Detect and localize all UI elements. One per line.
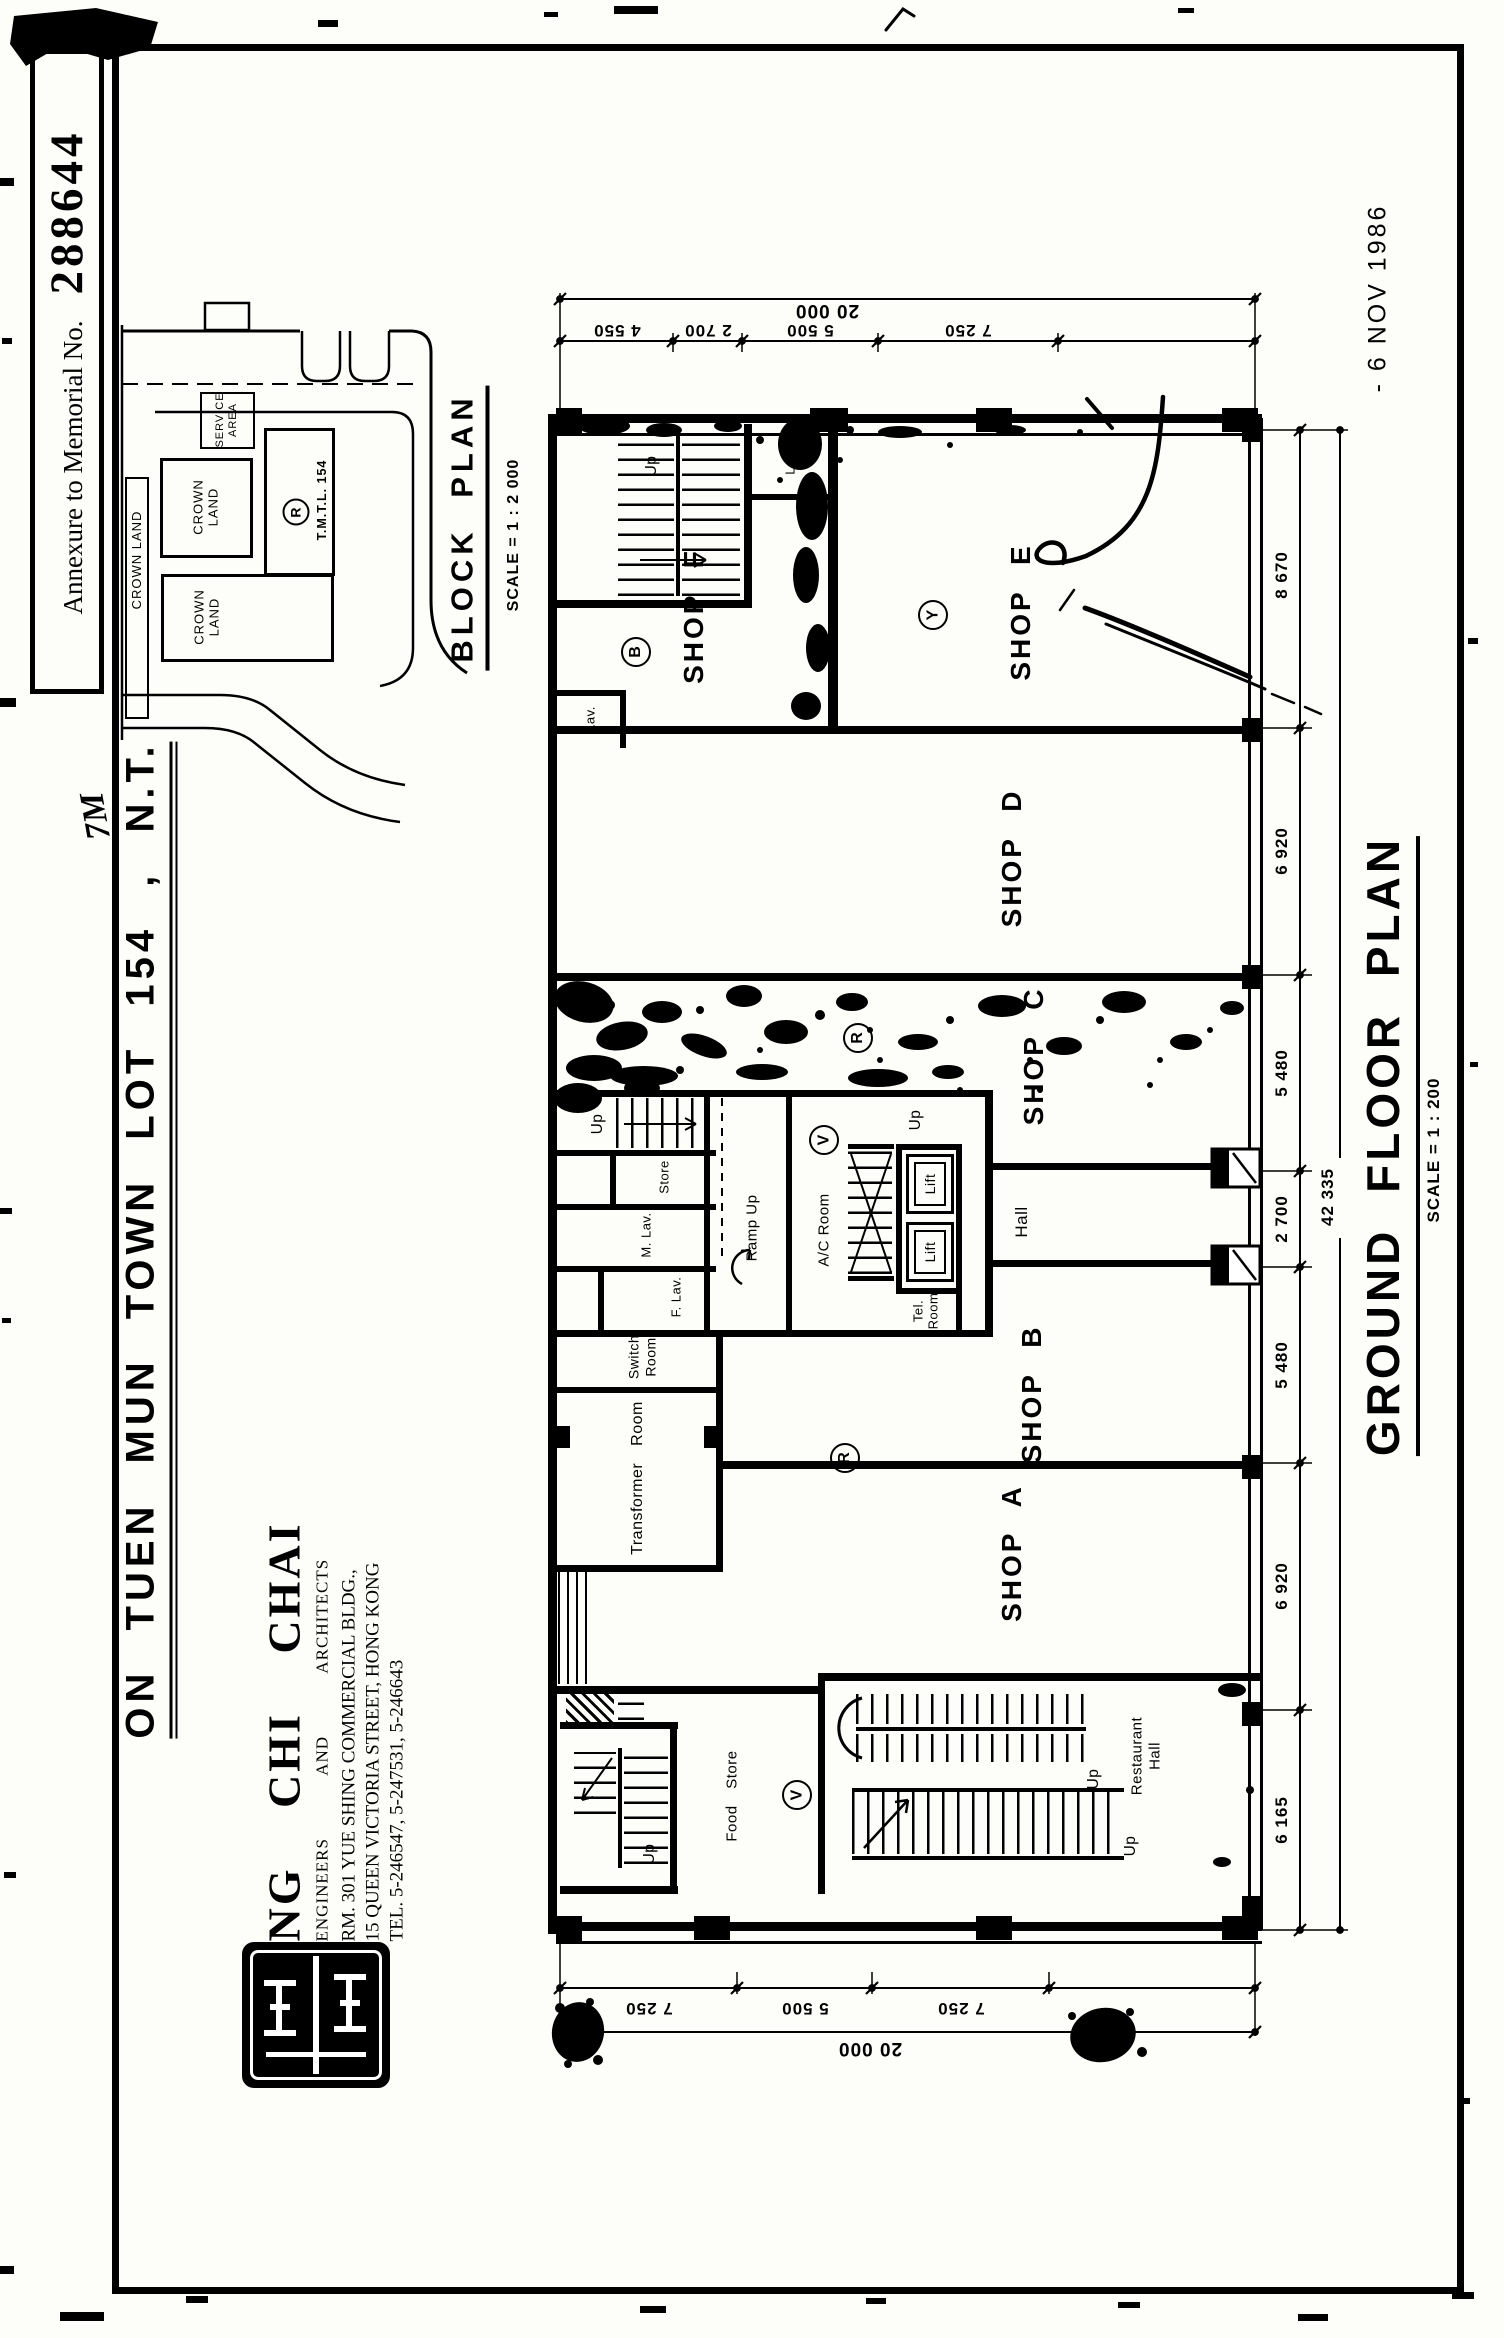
lav-label-side: Lav. — [583, 706, 598, 732]
up-label-restaurant-stairA: Up — [1085, 1769, 1103, 1790]
dim-side-seg-6: 6 920 — [1272, 1562, 1292, 1610]
shop-a-label: SHOP A — [996, 1484, 1028, 1622]
transformer-room-label: Transformer Room — [629, 1401, 647, 1555]
up-label-restaurant-stairB: Up — [1122, 1836, 1140, 1857]
restaurant-hall-label: RestaurantHall — [1128, 1717, 1163, 1795]
up-label-food-stair: Up — [641, 1844, 659, 1865]
mark-r-circle-shopC: R — [843, 1023, 873, 1053]
floor-plan-scale: SCALE = 1 : 200 — [1424, 1078, 1444, 1223]
tel-room-label: Tel.Room — [911, 1293, 942, 1330]
store-label: Store — [657, 1160, 672, 1194]
ramp-up-label: Ramp Up — [744, 1195, 761, 1262]
dim-side-seg-1: 8 670 — [1272, 551, 1292, 599]
lift-2-label: Lift — [922, 1242, 938, 1263]
lav-label-top: Lav. — [783, 449, 798, 475]
scanned-drawing-sheet: Annexure to Memorial No. 288644 CROWN LA… — [0, 0, 1504, 2338]
dim-side-seg-5: 5 480 — [1272, 1341, 1292, 1389]
m-lav-label: M. Lav. — [639, 1212, 654, 1257]
dim-side-seg-2: 6 920 — [1272, 827, 1292, 875]
switch-room-label: SwitchRoom — [625, 1335, 658, 1379]
dim-top-seg-1: 4 550 — [593, 320, 641, 340]
shop-f-label: SHOP F — [678, 548, 710, 684]
dim-top-seg-3: 5 500 — [786, 320, 834, 340]
shop-d-label: SHOP D — [996, 789, 1028, 928]
dim-bottom-seg-3: 7 250 — [937, 1998, 985, 2018]
lift-1-label: Lift — [922, 1174, 938, 1195]
dim-bottom-seg-2: 5 500 — [781, 1998, 829, 2018]
shop-c-label: SHOP C — [1018, 987, 1050, 1126]
dim-bottom-seg-1: 7 250 — [625, 1998, 673, 2018]
plan-linework-and-stains — [0, 0, 1504, 2338]
dim-side-overall: 42 335 — [1318, 1168, 1338, 1226]
food-store-label: Food Store — [724, 1750, 741, 1841]
up-label-core-stair: Up — [589, 1114, 607, 1135]
up-label-scissor-stair: Up — [907, 1110, 925, 1131]
shop-b-label: SHOP B — [1016, 1325, 1048, 1464]
hall-label: Hall — [1012, 1206, 1032, 1237]
dim-side-seg-7: 6 165 — [1272, 1796, 1292, 1844]
dim-bottom-overall: 20 000 — [838, 2037, 902, 2059]
dim-top-seg-4: 7 250 — [944, 320, 992, 340]
mark-v-circle-foodstore: V — [782, 1780, 812, 1810]
mark-v-circle-core: V — [809, 1125, 839, 1155]
dim-top-overall: 20 000 — [795, 299, 859, 321]
dim-side-seg-4: 2 700 — [1272, 1195, 1292, 1243]
floor-plan-title: GROUND FLOOR PLAN — [1356, 836, 1420, 1456]
dim-top-seg-2: 2 700 — [684, 320, 732, 340]
f-lav-label: F. Lav. — [669, 1277, 684, 1318]
mark-r-circle-shopB: R — [830, 1443, 860, 1473]
mark-y-circle: Y — [918, 600, 948, 630]
up-label-shopF-stair: Up — [643, 456, 661, 477]
dim-side-seg-3: 5 480 — [1272, 1049, 1292, 1097]
mark-b-circle: B — [621, 637, 651, 667]
ac-room-label: A/C Room — [816, 1193, 833, 1266]
shop-e-label: SHOP E — [1005, 543, 1037, 680]
